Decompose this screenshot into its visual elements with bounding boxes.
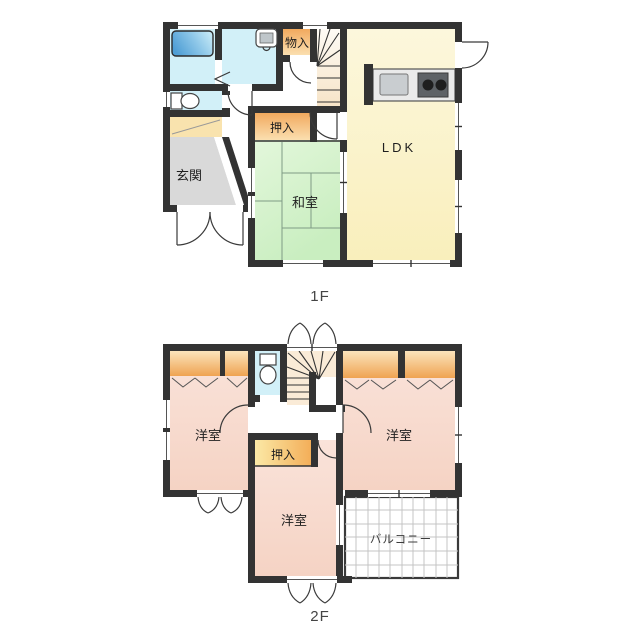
burner-icon (423, 80, 434, 91)
room-label-yoshitsu-left: 洋室 (195, 428, 221, 443)
room-label-yoshitsu-right: 洋室 (386, 428, 412, 443)
toilet-icon-1f (171, 93, 199, 109)
kitchen-sink-icon (380, 74, 408, 95)
room-label-genkan: 玄関 (176, 168, 202, 183)
stairs-1f (317, 29, 340, 112)
floor2-plan: 洋室 洋室 洋室 押入 バルコニー 2F (163, 323, 462, 625)
bathtub-icon (172, 31, 213, 56)
kitchen-counter (364, 64, 455, 105)
floorplan-canvas: 物入 玄関 押入 和室 LDK 1F (0, 0, 640, 640)
room-label-balcony: バルコニー (370, 533, 432, 546)
sink-icon (256, 29, 277, 51)
room-label-oshiire-2f: 押入 (271, 448, 295, 462)
room-label-yoshitsu-bottom: 洋室 (281, 513, 307, 528)
closet-right-a (343, 351, 398, 378)
closet-left-b (225, 351, 248, 376)
room-label-washitsu: 和室 (292, 195, 318, 210)
room-label-oshiire-1f: 押入 (270, 121, 294, 135)
closet-left-a (170, 351, 220, 376)
room-label-ldk: LDK (382, 140, 416, 155)
floor1-label: 1F (310, 288, 330, 305)
toilet-icon-2f (260, 354, 276, 384)
floor2-label: 2F (310, 608, 330, 625)
burner-icon (436, 80, 447, 91)
closet-right-b (405, 351, 455, 378)
room-label-monoire: 物入 (285, 36, 309, 50)
floor1-plan: 物入 玄関 押入 和室 LDK 1F (163, 22, 488, 305)
